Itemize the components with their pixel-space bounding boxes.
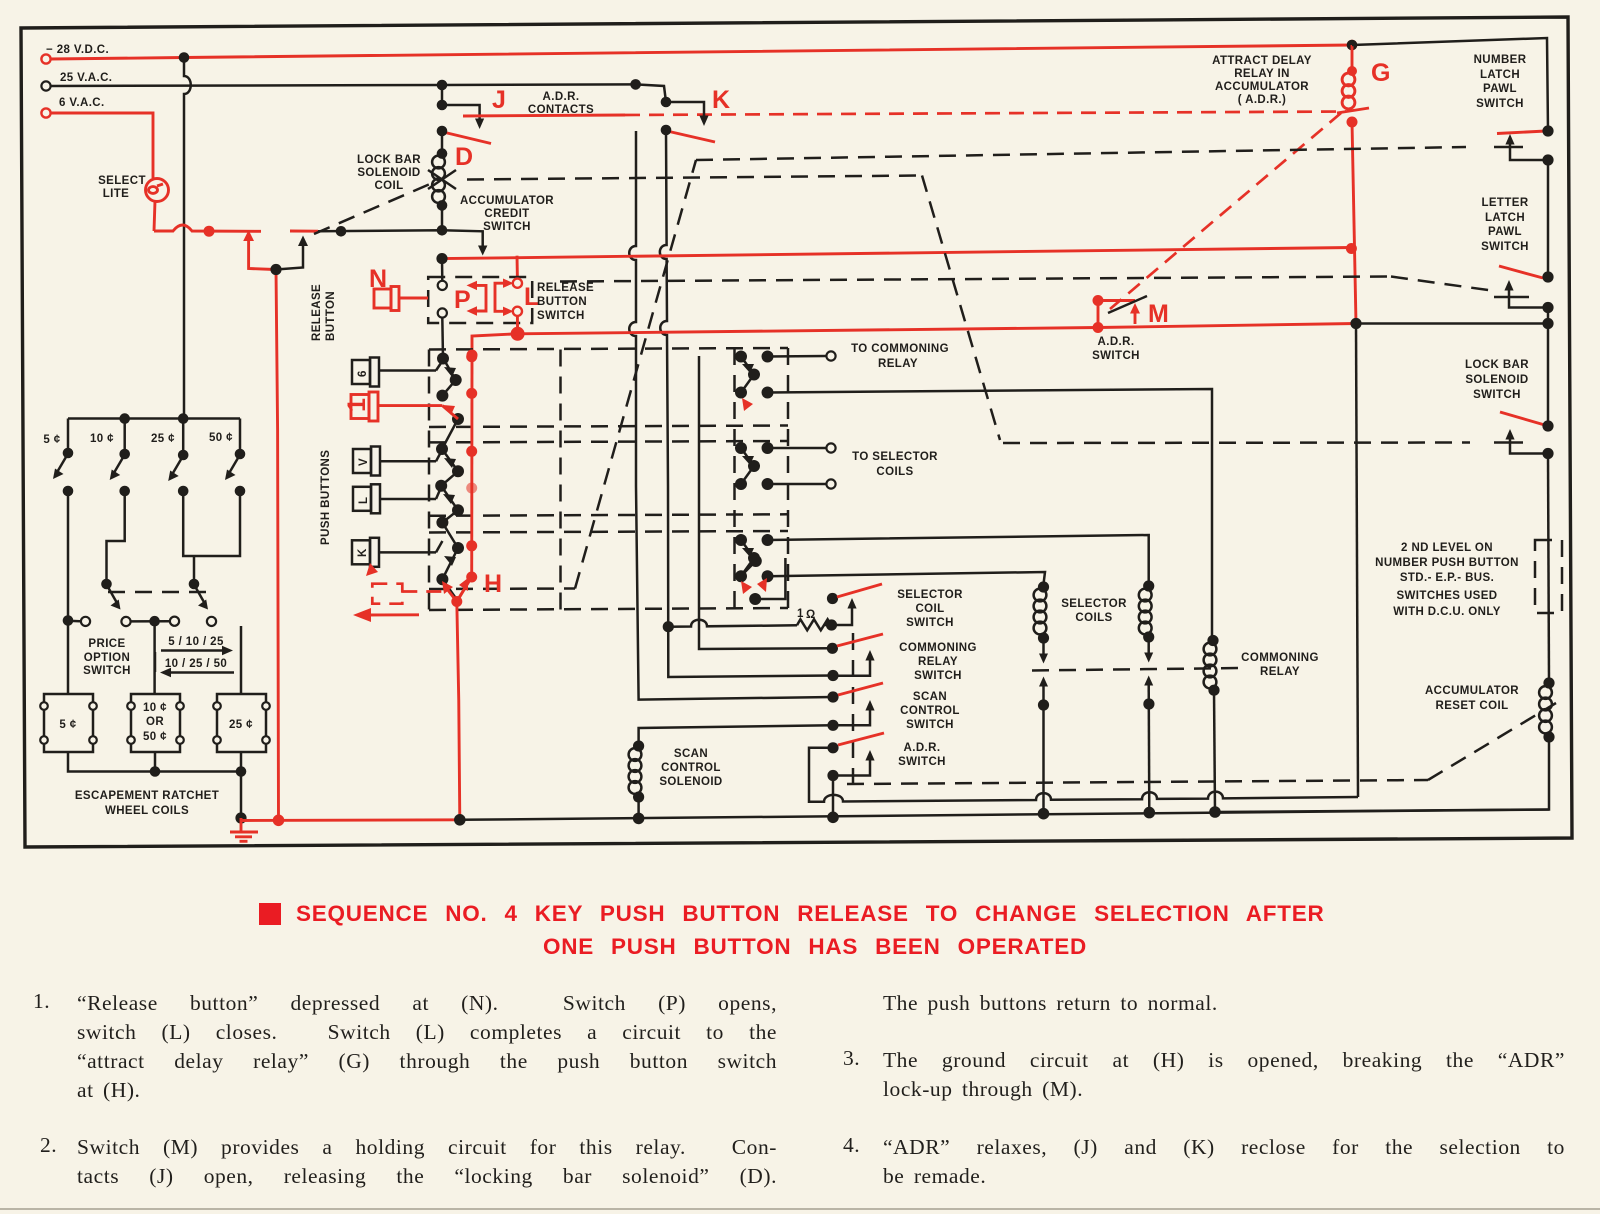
- svg-text:10 ¢: 10 ¢: [90, 433, 114, 445]
- svg-text:SCAN: SCAN: [913, 691, 947, 703]
- svg-text:6: 6: [357, 370, 369, 377]
- svg-text:COILS: COILS: [1075, 612, 1112, 624]
- svg-text:PAWL: PAWL: [1488, 226, 1522, 238]
- svg-text:10 / 25 / 50: 10 / 25 / 50: [165, 658, 227, 670]
- svg-text:H: H: [484, 570, 502, 598]
- svg-text:COIL: COIL: [374, 180, 403, 192]
- svg-text:STD.- E.P.- BUS.: STD.- E.P.- BUS.: [1400, 572, 1494, 584]
- svg-text:ATTRACT DELAY: ATTRACT DELAY: [1212, 55, 1312, 67]
- svg-text:COMMONING: COMMONING: [1241, 652, 1319, 664]
- svg-text:5 ¢: 5 ¢: [59, 719, 76, 731]
- svg-text:RELAY: RELAY: [878, 358, 918, 370]
- svg-text:LETTER: LETTER: [1481, 197, 1528, 209]
- svg-text:RELAY IN: RELAY IN: [1234, 68, 1290, 80]
- svg-text:SOLENOID: SOLENOID: [357, 167, 420, 179]
- svg-text:P: P: [454, 286, 471, 314]
- svg-text:5 ¢: 5 ¢: [43, 434, 60, 446]
- svg-text:SWITCH: SWITCH: [1473, 389, 1521, 401]
- svg-text:LITE: LITE: [103, 188, 130, 200]
- svg-text:− 28 V.D.C.: − 28 V.D.C.: [46, 44, 109, 56]
- svg-text:25 V.A.C.: 25 V.A.C.: [60, 72, 112, 84]
- svg-text:50 ¢: 50 ¢: [209, 432, 233, 444]
- svg-text:SWITCH: SWITCH: [898, 756, 946, 768]
- svg-text:RELEASE: RELEASE: [311, 284, 323, 341]
- svg-text:ACCUMULATOR: ACCUMULATOR: [1425, 685, 1519, 697]
- svg-text:SWITCH: SWITCH: [1481, 241, 1529, 253]
- svg-text:RELAY: RELAY: [918, 656, 958, 668]
- svg-text:RESET COIL: RESET COIL: [1435, 700, 1508, 712]
- svg-text:6 V.A.C.: 6 V.A.C.: [59, 97, 105, 109]
- svg-text:ACCUMULATOR: ACCUMULATOR: [1215, 81, 1309, 93]
- svg-text:K: K: [357, 548, 369, 557]
- svg-text:PUSH BUTTONS: PUSH BUTTONS: [320, 450, 332, 545]
- svg-text:SWITCH: SWITCH: [914, 670, 962, 682]
- svg-text:WHEEL COILS: WHEEL COILS: [105, 805, 189, 817]
- svg-text:SELECT: SELECT: [98, 175, 146, 187]
- svg-text:SWITCH: SWITCH: [906, 719, 954, 731]
- svg-text:SWITCH: SWITCH: [906, 617, 954, 629]
- svg-text:1: 1: [343, 398, 371, 412]
- svg-text:CONTROL: CONTROL: [661, 762, 721, 774]
- svg-text:LOCK BAR: LOCK BAR: [1465, 359, 1529, 371]
- svg-text:Ω: Ω: [806, 609, 816, 621]
- svg-text:V: V: [358, 458, 370, 466]
- svg-text:PRICE: PRICE: [88, 638, 125, 650]
- svg-text:WITH D.C.U. ONLY: WITH D.C.U. ONLY: [1393, 606, 1501, 618]
- svg-text:CREDIT: CREDIT: [484, 208, 529, 220]
- svg-text:( A.D.R.): ( A.D.R.): [1238, 94, 1287, 106]
- svg-text:LOCK BAR: LOCK BAR: [357, 154, 421, 166]
- svg-text:SWITCH: SWITCH: [1476, 98, 1524, 110]
- svg-text:SWITCHES USED: SWITCHES USED: [1396, 590, 1497, 602]
- svg-text:COIL: COIL: [915, 603, 944, 615]
- svg-text:SELECTOR: SELECTOR: [897, 589, 963, 601]
- svg-text:SWITCH: SWITCH: [1092, 350, 1140, 362]
- svg-text:CONTROL: CONTROL: [900, 705, 960, 717]
- svg-text:L: L: [358, 497, 370, 504]
- svg-text:M: M: [1148, 300, 1169, 328]
- svg-text:D: D: [455, 143, 473, 171]
- svg-text:J: J: [492, 86, 506, 114]
- svg-text:SOLENOID: SOLENOID: [659, 776, 722, 788]
- svg-text:SELECTOR: SELECTOR: [1061, 598, 1127, 610]
- svg-text:A.D.R.: A.D.R.: [1098, 336, 1135, 348]
- svg-text:A.D.R.: A.D.R.: [543, 91, 580, 103]
- svg-text:SOLENOID: SOLENOID: [1465, 374, 1528, 386]
- svg-text:G: G: [1371, 59, 1390, 87]
- svg-text:NUMBER PUSH BUTTON: NUMBER PUSH BUTTON: [1375, 557, 1519, 569]
- svg-text:K: K: [712, 86, 730, 114]
- svg-text:BUTTON: BUTTON: [325, 291, 337, 341]
- svg-text:COILS: COILS: [876, 466, 913, 478]
- svg-text:SWITCH: SWITCH: [537, 310, 585, 322]
- svg-text:OPTION: OPTION: [84, 652, 131, 664]
- svg-text:SWITCH: SWITCH: [83, 665, 131, 677]
- svg-text:OR: OR: [146, 716, 164, 728]
- svg-text:PAWL: PAWL: [1483, 83, 1517, 95]
- svg-text:50 ¢: 50 ¢: [143, 731, 167, 743]
- svg-text:BUTTON: BUTTON: [537, 296, 587, 308]
- svg-text:TO COMMONING: TO COMMONING: [851, 343, 949, 355]
- svg-text:NUMBER: NUMBER: [1474, 54, 1527, 66]
- svg-text:25 ¢: 25 ¢: [151, 433, 175, 445]
- svg-text:1: 1: [797, 608, 804, 620]
- svg-text:COMMONING: COMMONING: [899, 642, 977, 654]
- svg-text:ESCAPEMENT RATCHET: ESCAPEMENT RATCHET: [75, 790, 219, 802]
- svg-text:2 ND LEVEL ON: 2 ND LEVEL ON: [1401, 542, 1493, 554]
- svg-text:RELEASE: RELEASE: [537, 282, 594, 294]
- svg-text:LATCH: LATCH: [1480, 69, 1520, 81]
- svg-text:LATCH: LATCH: [1485, 212, 1525, 224]
- svg-text:TO SELECTOR: TO SELECTOR: [852, 451, 938, 463]
- svg-text:RELAY: RELAY: [1260, 666, 1300, 678]
- svg-text:5 / 10 / 25: 5 / 10 / 25: [168, 636, 224, 648]
- svg-text:SCAN: SCAN: [674, 748, 708, 760]
- svg-text:ACCUMULATOR: ACCUMULATOR: [460, 195, 554, 207]
- svg-text:A.D.R.: A.D.R.: [904, 742, 941, 754]
- svg-text:10 ¢: 10 ¢: [143, 702, 167, 714]
- svg-text:SWITCH: SWITCH: [483, 221, 531, 233]
- svg-text:25 ¢: 25 ¢: [229, 719, 253, 731]
